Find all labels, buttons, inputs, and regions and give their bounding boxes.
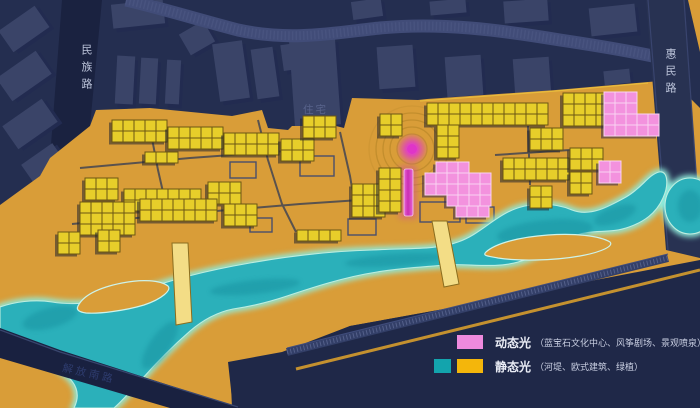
legend: 动态光 （蓝宝石文化中心、风筝剧场、景观喷泉） 静态光 （河堤、欧式建筑、绿植）: [434, 334, 700, 374]
lighting-plan-map: 民族路 惠民路 住宅 解放南路 动态光 （蓝宝石文化中心、风筝剧场、景观喷泉） …: [0, 0, 700, 408]
road-label-huimin: 惠民路: [662, 48, 678, 99]
legend-desc-static: （河堤、欧式建筑、绿植）: [535, 360, 643, 373]
legend-swatch-pink: [457, 335, 483, 349]
legend-row-dynamic: 动态光 （蓝宝石文化中心、风筝剧场、景观喷泉）: [434, 334, 700, 350]
legend-label-dynamic: 动态光: [495, 334, 531, 351]
legend-label-static: 静态光: [495, 358, 531, 375]
fountain-core: [407, 144, 417, 154]
legend-row-static: 静态光 （河堤、欧式建筑、绿植）: [434, 358, 700, 374]
legend-desc-dynamic: （蓝宝石文化中心、风筝剧场、景观喷泉）: [535, 336, 700, 349]
road-label-minzu: 民族路: [78, 44, 94, 95]
magenta-bar: [404, 169, 413, 216]
bridge-west: [172, 243, 192, 325]
residential-label: 住宅: [303, 102, 328, 117]
legend-swatch-teal: [434, 359, 451, 373]
legend-swatch-orange: [457, 359, 483, 373]
